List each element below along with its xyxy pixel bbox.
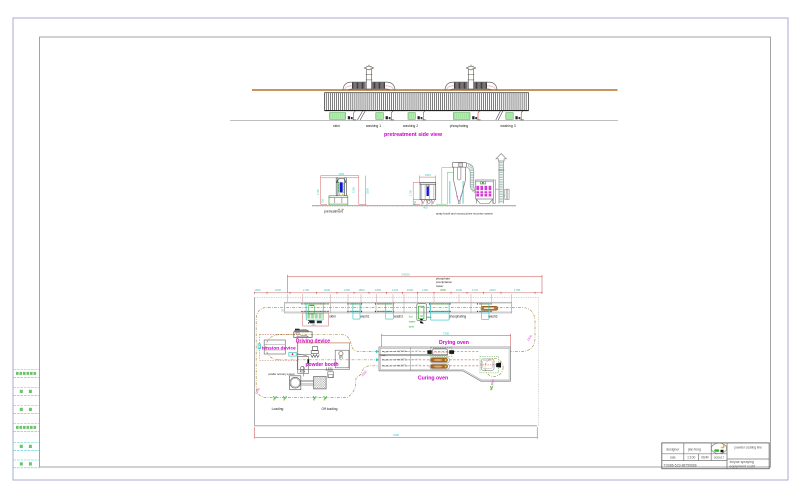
svg-text:1500: 1500: [407, 288, 414, 292]
svg-text:7300: 7300: [443, 331, 450, 335]
svg-text:phosphating: phosphating: [449, 314, 467, 318]
svg-text:1950: 1950: [375, 288, 382, 292]
svg-text:1150: 1150: [422, 288, 428, 292]
svg-text:4500: 4500: [440, 288, 446, 292]
svg-text:Off loading: Off loading: [322, 407, 338, 411]
svg-text:7000: 7000: [393, 433, 400, 437]
svg-text:3350: 3350: [365, 188, 369, 194]
svg-text:1700: 1700: [303, 288, 310, 292]
svg-text:Driving device: Driving device: [296, 339, 330, 345]
svg-text:1500: 1500: [425, 173, 431, 177]
svg-text:rate: rate: [670, 455, 676, 459]
svg-text:skim: skim: [333, 124, 340, 128]
svg-text:1443: 1443: [392, 288, 399, 292]
svg-text:T:0086-523-88759666: T:0086-523-88759666: [664, 464, 697, 468]
svg-text:1500: 1500: [352, 187, 356, 193]
svg-text:1800: 1800: [358, 288, 365, 292]
svg-text:wash1: wash1: [360, 314, 369, 318]
svg-text:wash2: wash2: [394, 314, 403, 318]
svg-text:450: 450: [414, 200, 417, 205]
svg-text:2250: 2250: [275, 288, 282, 292]
svg-text:1000: 1000: [456, 288, 463, 292]
svg-text:2200: 2200: [489, 288, 496, 292]
svg-text:06/M: 06/M: [701, 455, 709, 459]
svg-text:2000: 2000: [324, 288, 331, 292]
svg-text:spray booth and monocyclone re: spray booth and monocyclone recovery sys…: [436, 212, 493, 216]
svg-text:005617: 005617: [714, 455, 725, 459]
svg-text:Curing oven: Curing oven: [418, 376, 448, 382]
svg-text:750: 750: [322, 198, 325, 203]
svg-text:hot: hot: [409, 314, 413, 318]
svg-text:designer: designer: [666, 447, 680, 451]
svg-text:Drying oven: Drying oven: [439, 340, 469, 346]
svg-text:1750: 1750: [316, 189, 320, 195]
svg-text:washing 1: washing 1: [366, 124, 381, 128]
svg-text:1758: 1758: [514, 288, 521, 292]
svg-text:tank: tank: [409, 325, 415, 329]
svg-text:1715: 1715: [472, 288, 479, 292]
svg-text:pretreatment side view: pretreatment side view: [384, 132, 443, 138]
svg-text:1:100: 1:100: [687, 455, 695, 459]
svg-text:pretreatment: pretreatment: [324, 210, 343, 214]
svg-text:powder coating line: powder coating line: [734, 446, 762, 450]
svg-text:400: 400: [423, 207, 428, 210]
svg-text:water: water: [409, 320, 416, 324]
svg-text:1500: 1500: [254, 288, 261, 292]
svg-text:washing 2: washing 2: [403, 124, 418, 128]
svg-text:1700: 1700: [408, 190, 412, 196]
svg-text:1450: 1450: [344, 288, 351, 292]
svg-text:Loading: Loading: [272, 407, 284, 411]
svg-text:powder recovery system: powder recovery system: [268, 372, 295, 376]
svg-text:powder booth: powder booth: [305, 362, 338, 368]
svg-text:1200: 1200: [338, 172, 344, 176]
svg-text:wash3: wash3: [488, 314, 497, 318]
svg-text:phosphating: phosphating: [450, 124, 469, 128]
svg-text:equipment co,ltd: equipment co,ltd: [730, 464, 756, 468]
svg-text:tower: tower: [436, 284, 443, 288]
svg-text:washing 3: washing 3: [500, 124, 515, 128]
svg-text:skim: skim: [329, 314, 336, 318]
svg-text:24250: 24250: [401, 273, 410, 277]
svg-text:tension device: tension device: [262, 345, 296, 351]
svg-text:jian feng: jian feng: [687, 447, 701, 451]
